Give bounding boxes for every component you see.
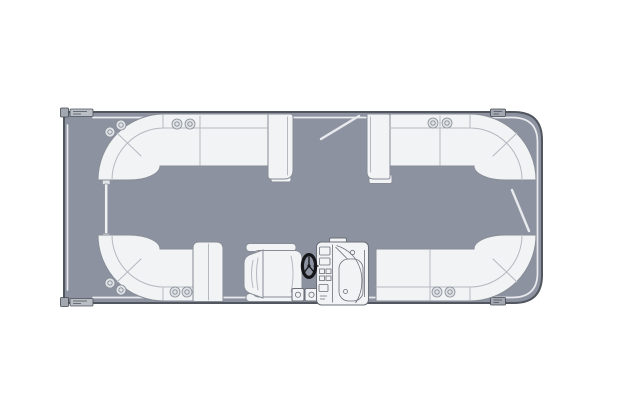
storage-tray [292,289,304,302]
cleat-top-right [491,109,506,117]
bow-gate-panel [105,184,108,234]
armrest-body [268,114,293,179]
armrest-panel [268,114,293,182]
cleat-bottom-left [61,298,94,307]
cleat-top-left [61,108,94,117]
chair-backrest [244,250,263,298]
pontoon-floorplan-svg [0,0,627,419]
floorplan-canvas [0,0,627,419]
armrest-panel [367,114,392,184]
armrest-panel [193,242,223,302]
cleat-bottom-right [491,298,506,306]
wheel-hub [307,264,310,267]
